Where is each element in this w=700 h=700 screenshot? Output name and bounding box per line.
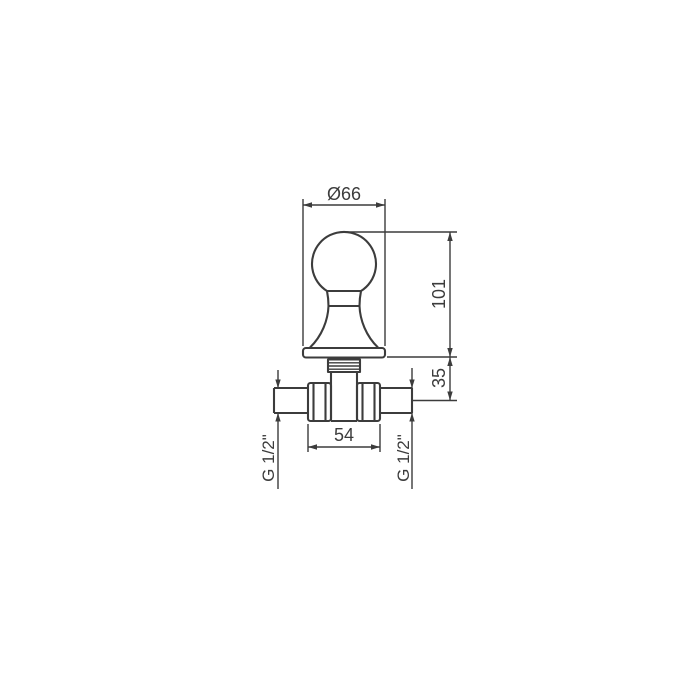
arrowhead: [447, 392, 452, 401]
arrowhead: [371, 444, 380, 449]
arrowhead: [409, 380, 414, 389]
arrowhead: [303, 202, 312, 207]
arrowhead: [275, 413, 280, 422]
pipe-left: [274, 388, 308, 413]
arrowhead: [447, 348, 452, 357]
pipe-right: [380, 388, 412, 413]
valve-body: [274, 360, 412, 422]
dim-width-label: 54: [334, 425, 354, 445]
arrowhead: [275, 380, 280, 389]
dimension-height: 101: [345, 232, 457, 357]
dimension-thread-left: G 1/2": [259, 370, 281, 489]
dimension-thread-right: G 1/2": [394, 368, 415, 489]
dimension-diameter: Ø66: [303, 184, 385, 346]
hex-nut-right: [357, 383, 380, 421]
dimension-width: 54: [308, 424, 380, 452]
ball-knob-handle: [303, 232, 385, 358]
dim-thread-right-label: G 1/2": [394, 434, 413, 482]
dim-depth-label: 35: [429, 368, 449, 388]
knob-neck-right: [360, 291, 362, 306]
dimension-depth: 35: [413, 357, 457, 401]
knob-bell-left: [310, 306, 329, 348]
dim-height-label: 101: [429, 279, 449, 309]
dim-thread-left-label: G 1/2": [259, 434, 278, 482]
knob-bell-right: [360, 306, 379, 348]
arrowhead: [409, 413, 414, 422]
arrowhead: [308, 444, 317, 449]
dim-diameter-label: Ø66: [327, 184, 361, 204]
base-plate: [303, 348, 385, 358]
valve-dimension-drawing: Ø66 101 35 54: [0, 0, 700, 700]
hex-nut-left: [308, 383, 331, 421]
technical-drawing-page: Ø66 101 35 54: [0, 0, 700, 700]
knob-neck-left: [327, 291, 329, 306]
arrowhead: [447, 357, 452, 366]
arrowhead: [376, 202, 385, 207]
arrowhead: [447, 232, 452, 241]
knob-ball-outline: [312, 232, 376, 291]
